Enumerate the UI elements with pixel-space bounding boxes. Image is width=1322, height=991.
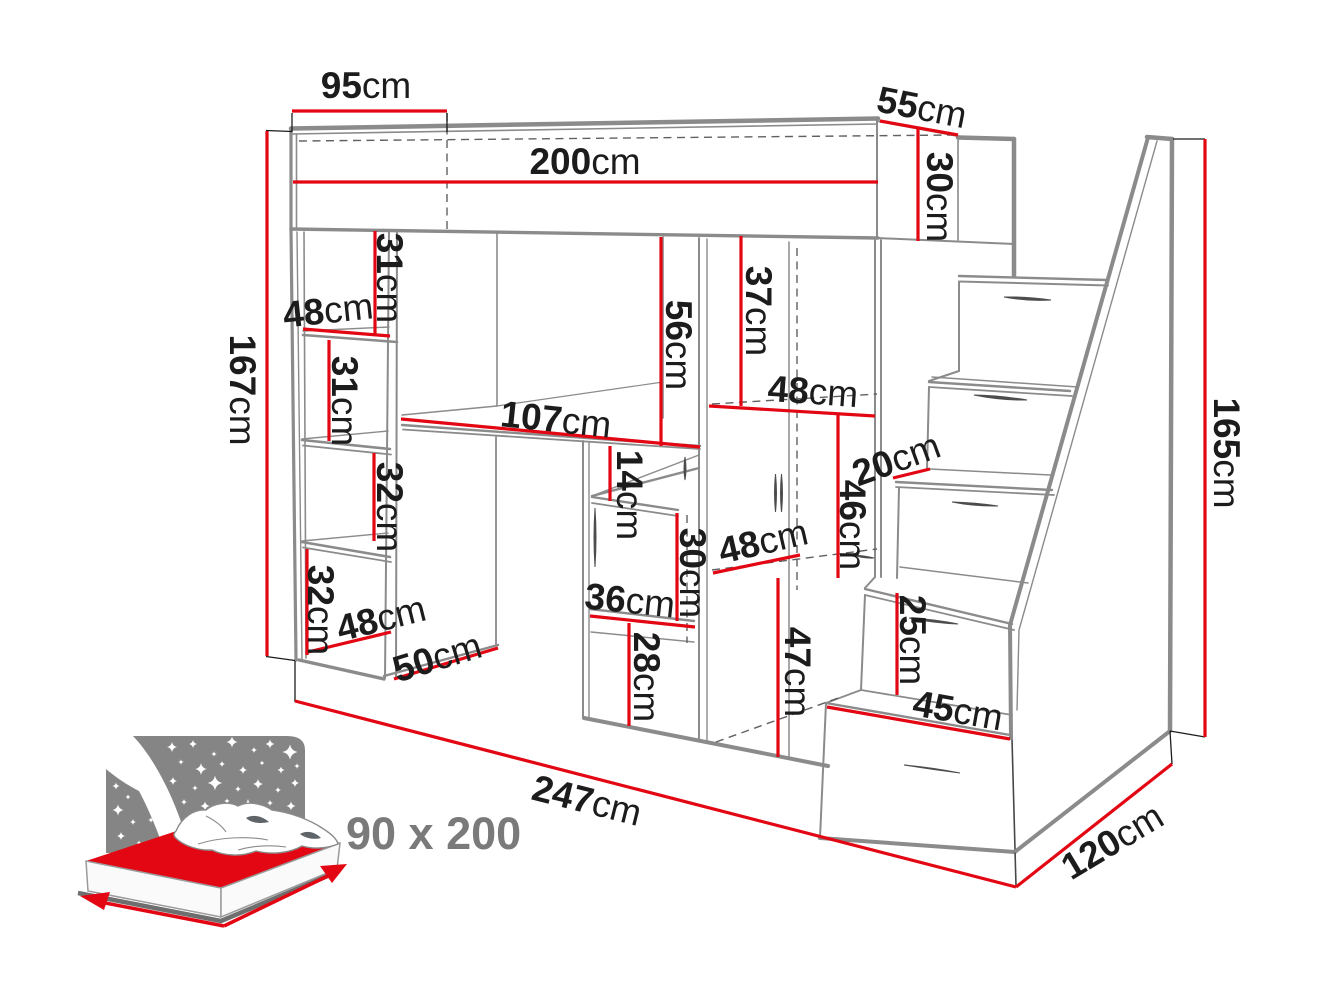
svg-text:167cm: 167cm	[222, 334, 263, 445]
svg-text:46cm: 46cm	[832, 480, 873, 570]
svg-text:28cm: 28cm	[626, 632, 667, 722]
svg-text:30cm: 30cm	[919, 152, 960, 242]
svg-text:200cm: 200cm	[529, 141, 640, 182]
svg-text:14cm: 14cm	[609, 450, 650, 540]
svg-text:48cm: 48cm	[766, 368, 859, 415]
svg-text:30cm: 30cm	[672, 528, 713, 618]
svg-text:95cm: 95cm	[321, 65, 411, 106]
svg-text:90 x 200: 90 x 200	[346, 808, 521, 859]
svg-text:165cm: 165cm	[1206, 397, 1247, 508]
svg-text:31cm: 31cm	[324, 356, 365, 446]
svg-text:56cm: 56cm	[658, 300, 699, 390]
svg-text:25cm: 25cm	[892, 595, 933, 685]
svg-text:47cm: 47cm	[777, 627, 818, 717]
svg-text:37cm: 37cm	[738, 266, 779, 356]
svg-text:32cm: 32cm	[369, 462, 410, 552]
svg-text:31cm: 31cm	[369, 233, 410, 323]
